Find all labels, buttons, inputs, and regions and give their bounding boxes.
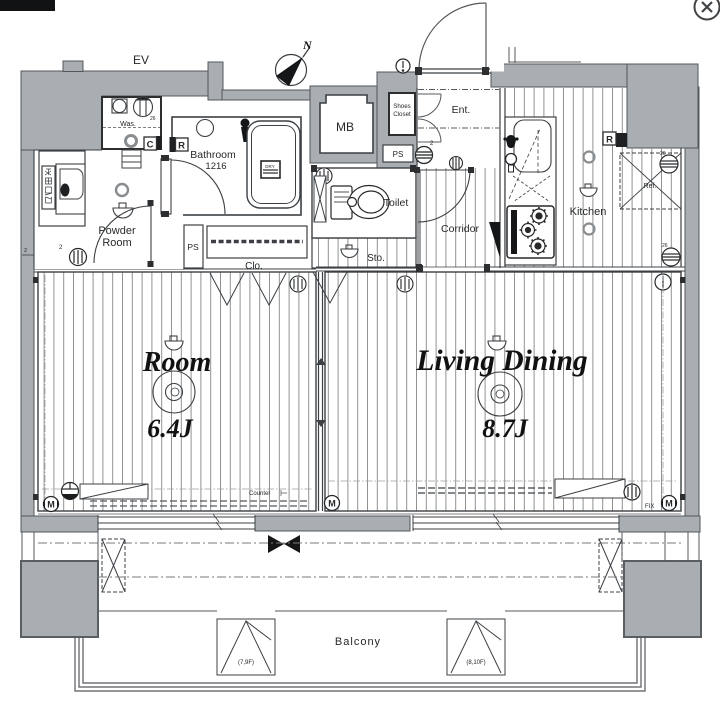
svg-text:(8,10F): (8,10F) bbox=[466, 660, 485, 666]
svg-text:Kitchen: Kitchen bbox=[570, 206, 607, 218]
svg-text:Ref.: Ref. bbox=[644, 183, 657, 190]
svg-text:N: N bbox=[302, 38, 313, 52]
svg-text:Clo.: Clo. bbox=[245, 261, 263, 272]
svg-text:Ent.: Ent. bbox=[452, 104, 471, 116]
svg-text:R: R bbox=[606, 135, 613, 146]
svg-text:C: C bbox=[147, 140, 154, 151]
svg-text:M: M bbox=[665, 499, 673, 509]
svg-text:Room: Room bbox=[142, 347, 211, 378]
svg-text:M: M bbox=[328, 499, 336, 509]
svg-text:26: 26 bbox=[660, 151, 666, 157]
svg-text:DRY: DRY bbox=[265, 164, 274, 169]
svg-text:EV: EV bbox=[133, 53, 149, 67]
svg-text:26: 26 bbox=[150, 116, 156, 122]
svg-text:1216: 1216 bbox=[205, 161, 226, 172]
svg-text:Shoes: Shoes bbox=[393, 103, 411, 110]
svg-text:Sto.: Sto. bbox=[367, 253, 385, 264]
svg-text:Closet: Closet bbox=[393, 111, 411, 118]
svg-text:PS: PS bbox=[393, 150, 404, 159]
svg-text:6.4J: 6.4J bbox=[147, 414, 194, 443]
svg-text:MB: MB bbox=[336, 120, 354, 134]
svg-text:M: M bbox=[47, 500, 55, 510]
svg-text:2: 2 bbox=[24, 248, 27, 254]
svg-text:Counter: Counter bbox=[249, 491, 270, 497]
svg-text:Bathroom: Bathroom bbox=[190, 149, 236, 161]
svg-text:8.7J: 8.7J bbox=[482, 414, 529, 443]
svg-text:Corridor: Corridor bbox=[441, 223, 479, 235]
svg-text:Balcony: Balcony bbox=[335, 636, 381, 648]
svg-text:Was.: Was. bbox=[120, 121, 136, 128]
svg-text:Room: Room bbox=[102, 237, 131, 249]
svg-text:(7,9F): (7,9F) bbox=[238, 660, 254, 666]
svg-text:FIX: FIX bbox=[645, 504, 654, 510]
svg-text:PS: PS bbox=[187, 242, 199, 252]
svg-text:26: 26 bbox=[662, 243, 668, 249]
svg-text:R: R bbox=[178, 141, 185, 152]
svg-text:Toilet: Toilet bbox=[384, 197, 409, 209]
